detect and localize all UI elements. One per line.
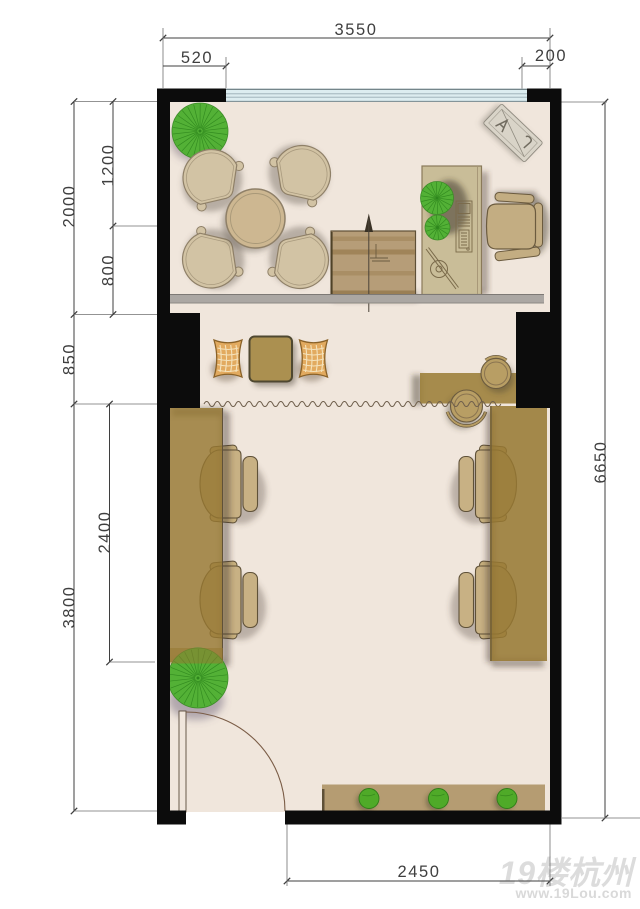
svg-text:2400: 2400	[96, 510, 114, 553]
svg-text:www.19Lou.com: www.19Lou.com	[515, 885, 632, 901]
svg-text:3550: 3550	[334, 21, 377, 39]
svg-text:850: 850	[61, 343, 79, 375]
svg-text:2000: 2000	[61, 184, 79, 227]
svg-text:200: 200	[535, 47, 567, 65]
svg-text:2450: 2450	[397, 863, 440, 881]
svg-text:1200: 1200	[100, 143, 118, 186]
svg-text:520: 520	[181, 49, 213, 67]
svg-text:800: 800	[100, 254, 118, 286]
svg-text:6650: 6650	[592, 440, 610, 483]
svg-text:3800: 3800	[61, 585, 79, 628]
